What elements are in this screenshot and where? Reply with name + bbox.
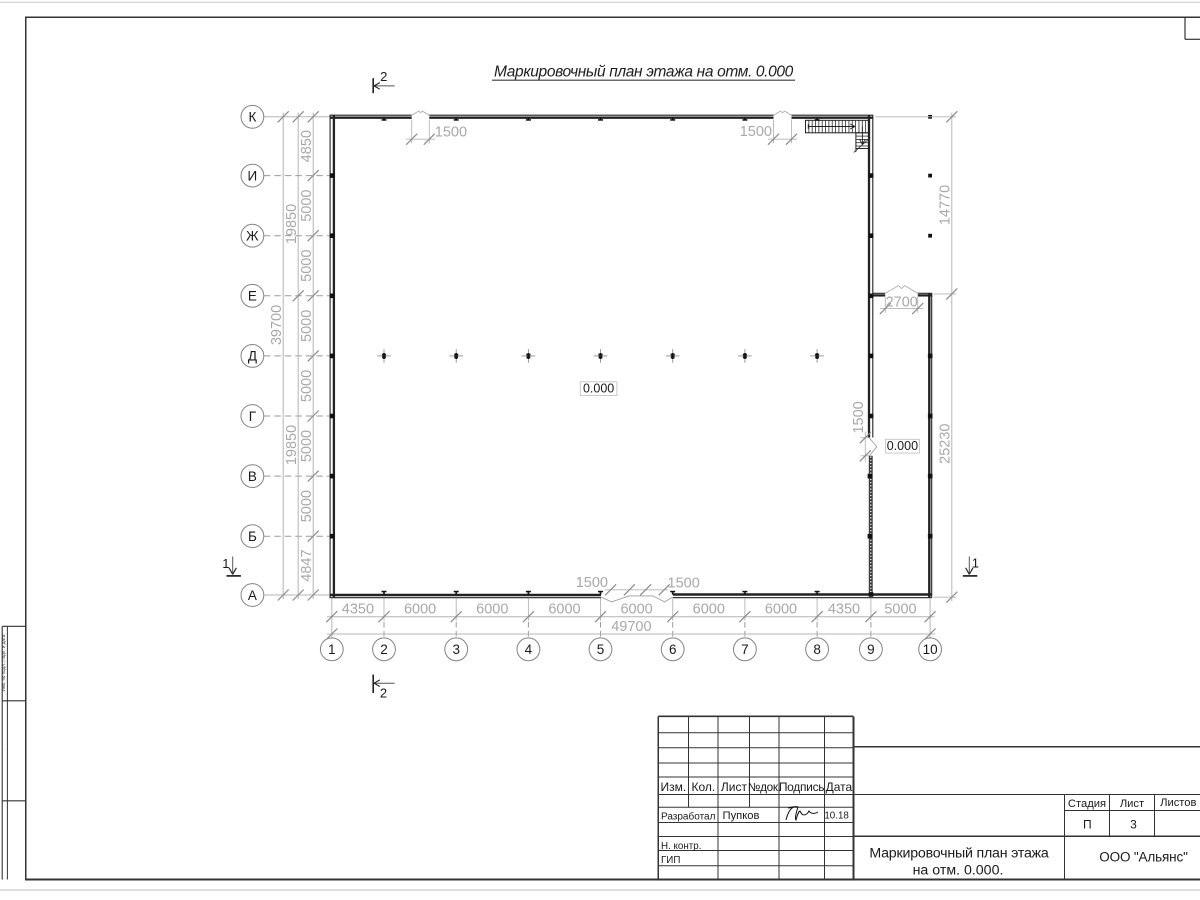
svg-text:Маркировочный план этажа: Маркировочный план этажа: [869, 846, 1049, 862]
svg-text:ГИП: ГИП: [661, 855, 680, 866]
svg-text:Дата: Дата: [826, 780, 853, 794]
svg-text:Б: Б: [248, 529, 257, 544]
svg-text:2: 2: [380, 642, 388, 657]
svg-text:6000: 6000: [765, 602, 797, 618]
svg-text:1: 1: [972, 556, 979, 571]
svg-text:5000: 5000: [299, 250, 315, 282]
svg-text:Лист: Лист: [1120, 798, 1144, 810]
svg-text:2: 2: [380, 685, 387, 700]
svg-text:И: И: [248, 168, 258, 183]
svg-text:.: .: [1, 749, 6, 750]
svg-text:8: 8: [813, 642, 821, 657]
svg-text:1: 1: [328, 642, 336, 657]
svg-text:14770: 14770: [937, 185, 953, 225]
svg-text:1500: 1500: [576, 575, 608, 591]
svg-text:0.000: 0.000: [887, 439, 918, 453]
svg-text:5000: 5000: [299, 370, 315, 402]
svg-text:10.18: 10.18: [824, 810, 849, 821]
svg-text:Инв. № подл. Подп. и дата: Инв. № подл. Подп. и дата: [1, 634, 6, 691]
svg-text:19850: 19850: [284, 204, 300, 244]
svg-text:Маркировочный план этажа на от: Маркировочный план этажа на отм. 0.000: [494, 63, 794, 80]
svg-text:0.000: 0.000: [583, 381, 614, 395]
svg-text:Лист: Лист: [721, 780, 748, 794]
svg-text:7: 7: [741, 642, 749, 657]
svg-text:6: 6: [669, 642, 677, 657]
svg-text:5000: 5000: [884, 602, 916, 618]
svg-text:Кол.: Кол.: [691, 780, 715, 794]
svg-text:2: 2: [380, 69, 387, 84]
svg-text:В: В: [248, 469, 257, 484]
svg-text:5000: 5000: [299, 310, 315, 342]
svg-text:3: 3: [1130, 817, 1137, 831]
svg-text:Подпись: Подпись: [779, 780, 824, 794]
svg-text:Ж: Ж: [246, 229, 259, 244]
svg-text:9: 9: [867, 642, 875, 657]
svg-text:5000: 5000: [299, 430, 315, 462]
svg-text:Д: Д: [248, 349, 257, 364]
svg-text:Стадия: Стадия: [1068, 798, 1106, 810]
svg-text:К: К: [248, 110, 256, 125]
svg-text:5: 5: [597, 642, 605, 657]
svg-text:4847: 4847: [299, 549, 315, 581]
svg-text:4350: 4350: [828, 602, 860, 618]
svg-text:6000: 6000: [548, 602, 580, 618]
svg-text:Изм.: Изм.: [660, 780, 686, 794]
svg-text:Е: Е: [248, 289, 257, 304]
svg-text:1500: 1500: [851, 401, 867, 433]
svg-text:№док.: №док.: [748, 780, 781, 794]
svg-text:1500: 1500: [435, 125, 467, 141]
svg-text:4850: 4850: [299, 130, 315, 162]
svg-text:6000: 6000: [476, 602, 508, 618]
svg-text:П: П: [1083, 818, 1092, 832]
svg-text:ООО "Альянс": ООО "Альянс": [1099, 850, 1188, 865]
svg-text:Разработал: Разработал: [661, 810, 716, 822]
svg-text:6000: 6000: [620, 602, 652, 618]
svg-text:4350: 4350: [342, 602, 374, 618]
svg-text:6000: 6000: [693, 602, 725, 618]
svg-text:5000: 5000: [299, 490, 315, 522]
svg-text:Г: Г: [249, 409, 257, 424]
svg-text:49700: 49700: [611, 619, 651, 635]
svg-text:1500: 1500: [668, 575, 700, 591]
svg-text:на отм. 0.000.: на отм. 0.000.: [913, 863, 1004, 879]
svg-text:3: 3: [452, 642, 460, 657]
svg-text:19850: 19850: [284, 425, 300, 465]
svg-text:39700: 39700: [269, 305, 285, 345]
svg-text:10: 10: [923, 642, 938, 657]
svg-text:4: 4: [525, 642, 533, 657]
svg-text:Пупков: Пупков: [723, 810, 760, 822]
svg-text:Н. контр.: Н. контр.: [661, 841, 701, 852]
svg-text:6000: 6000: [404, 602, 436, 618]
svg-text:1: 1: [222, 556, 229, 571]
svg-text:5000: 5000: [299, 190, 315, 222]
svg-text:Листов: Листов: [1160, 797, 1196, 809]
svg-text:А: А: [248, 588, 257, 603]
svg-text:25230: 25230: [937, 424, 953, 464]
svg-text:2700: 2700: [886, 294, 918, 310]
svg-text:1500: 1500: [740, 124, 772, 140]
